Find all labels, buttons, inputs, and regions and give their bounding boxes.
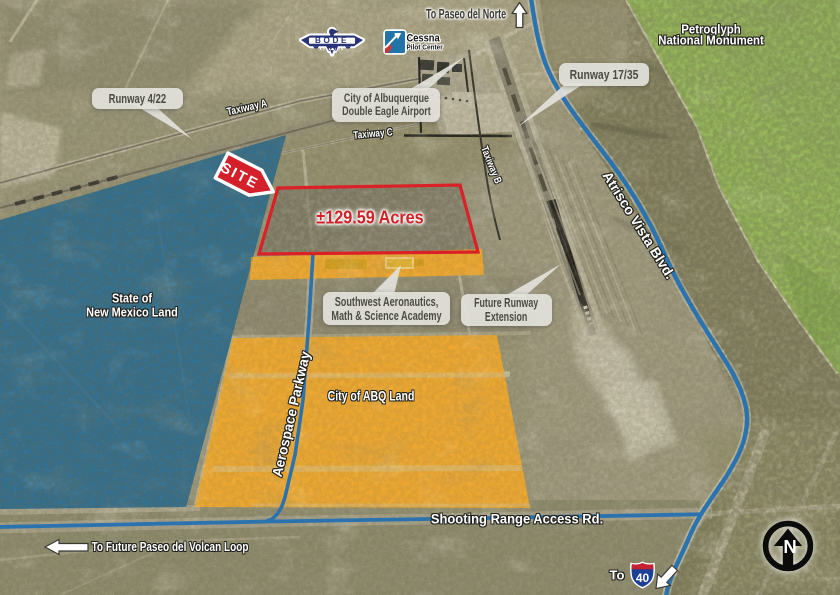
svg-text:AVIATION: AVIATION xyxy=(319,47,344,51)
svg-text:Pilot Center: Pilot Center xyxy=(407,44,444,51)
svg-text:40: 40 xyxy=(636,571,650,585)
svg-text:BODE: BODE xyxy=(315,36,349,45)
svg-text:N: N xyxy=(783,536,796,557)
svg-text:Cessna: Cessna xyxy=(407,33,441,45)
